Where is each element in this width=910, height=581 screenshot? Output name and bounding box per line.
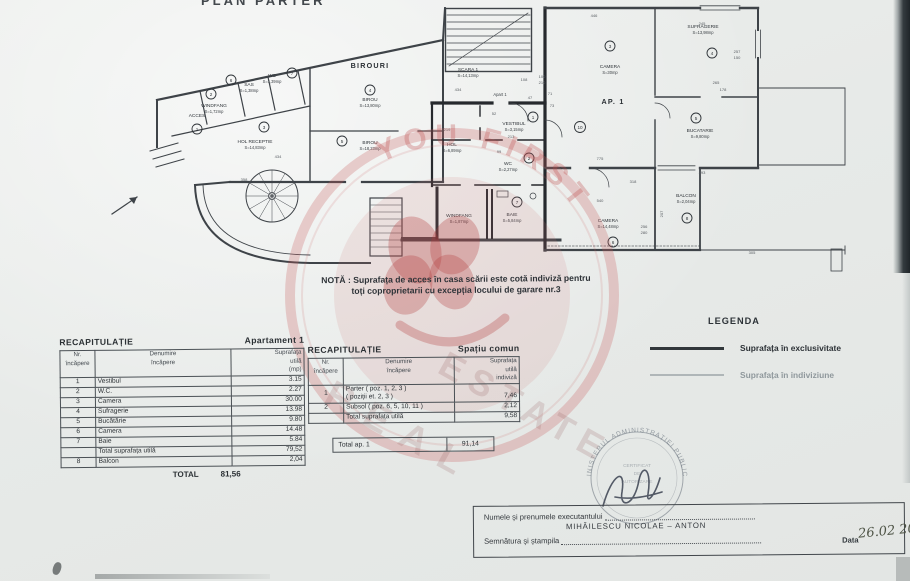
cell-val: 7,46 [454,383,519,402]
total-ap1-box: Total ap. 1 91,14 [332,436,494,452]
room-number: 7 [291,71,294,76]
total-ap1-value: 91,14 [446,437,493,450]
cell-nr: 6 [61,427,96,437]
svg-text:265: 265 [713,80,720,85]
col-denumire: Denumire încăpere [343,357,454,385]
cell-val: 9.80 [232,415,305,426]
svg-text:280: 280 [641,230,648,235]
total-value: 81,56 [221,469,241,478]
room-label-wc1: WC S=1,39mp 7 [263,68,297,84]
cell-nr: 5 [61,417,96,427]
col-suprafata: Suprafața utilă indiviză [454,357,519,384]
svg-text:100: 100 [539,74,546,79]
room-number: 4 [711,51,714,56]
room-number: 6 [230,78,233,83]
table-row: 1Parter ( poz. 1, 2, 3 ) ( poziții et. 2… [308,383,519,403]
scan-smudge [95,574,270,579]
scan-edge-band-lower [902,273,910,483]
recap-spatiu-comun-table: RECAPITULAȚIE Spațiu comun Nr. încăpere … [308,343,521,453]
scan-edge-band [893,0,910,273]
room-number: 5 [341,139,344,144]
col-nr: Nr. încăpere [60,350,95,377]
cell-nr: 8 [61,457,96,467]
solid-line-sample [650,347,724,350]
room-label-bucatarie: BUCATARIE S=9,80mp 5 [687,113,714,139]
legend: LEGENDA Suprafața în exclusivitate Supra… [650,316,906,380]
legend-item-label: Suprafața în indiviziune [740,370,834,380]
cell-nr: 4 [60,407,95,417]
room-number: 6 [612,240,615,245]
cell-nr: 2 [60,387,95,397]
window-lines [700,6,740,10]
svg-text:73: 73 [550,103,555,108]
room-area: S=14,83mp [244,145,266,150]
executant-label: Numele și prenumele executantului [484,512,603,522]
room-label-birou4: BIROU S=13,80mp 4 [359,85,381,108]
room-label-acces: ACCES 1 [189,113,206,134]
stamp-line3: AUTORIZARE [622,479,653,485]
svg-text:318: 318 [630,179,637,184]
cell-val: 30.00 [231,395,304,406]
svg-text:210: 210 [539,80,546,85]
cell-val: 2.27 [231,385,304,396]
svg-text:358: 358 [241,177,248,182]
room-number: 4 [369,88,372,93]
ap1-label: AP. 1 [601,97,624,106]
legend-item-label: Suprafața în exclusivitate [740,343,841,353]
svg-text:434: 434 [275,154,282,159]
svg-text:775: 775 [597,156,604,161]
room-number: 8 [686,216,689,221]
room-area: S=1,38mp [240,88,259,93]
svg-text:293: 293 [699,170,706,175]
cell-val: 14.48 [232,425,305,436]
svg-text:245: 245 [699,21,706,26]
room-label-scara1: SCARA 1 S=14,13mp [457,67,479,78]
room-number: 3 [263,125,266,130]
cell-val: 79,52 [232,445,305,456]
room-area: S=2,04mp [677,199,696,204]
balcony-door [658,166,695,170]
room-area: S=1,72mp [205,109,224,114]
room-number-10: 10 [577,125,583,130]
cell-val: 2,04 [232,455,305,466]
table-header-row: Nr. încăpere Denumire încăpere Suprafața… [308,357,519,386]
room-name: ACCES [189,113,206,119]
room-label-balcon: BALCON S=2,04mp 8 [676,193,696,223]
cell-nr [61,447,96,457]
cell-nr: 2 [309,403,344,413]
page-title: PLAN PARTER [201,0,325,8]
table-row-total: Total suprafața utilă9,58 [309,412,520,424]
dotted-line [605,511,755,520]
room-label-hol-receptie: HOL RECEPTIE S=14,83mp 3 [237,122,272,150]
window-lines [756,30,761,58]
col-suprafata: Suprafața utilă (mp) [231,348,304,376]
room-number: 1 [196,127,199,132]
dotted-line [561,535,761,545]
scan-smudge [896,557,910,581]
room-area: S=30mp [602,70,618,75]
room-area: S=13,98mp [692,30,714,35]
recap1-subtitle: Apartament 1 [245,335,305,346]
cell-val: 3.15 [231,375,304,386]
table-header-row: Nr. încăpere Denumire încăpere Suprafața… [60,348,304,377]
cell-denumire: Balcon [96,456,232,467]
svg-text:52: 52 [492,111,497,116]
handwritten-signature [603,470,662,506]
legend-item-exclusivitate: Suprafața în exclusivitate [650,343,906,353]
recap1-title: RECAPITULAȚIE [59,337,133,348]
room-area: S=13,80mp [359,103,381,108]
recap2-title: RECAPITULAȚIE [308,344,382,355]
total-ap1-label: Total ap. 1 [333,441,446,449]
svg-text:207: 207 [659,210,664,217]
col-nr: Nr. încăpere [308,358,343,385]
recap2-subtitle: Spațiu comun [458,343,520,354]
handwritten-date: 26.02 2006 [857,520,910,542]
executant-name: MIHĂILESCU NICOLAE – ANTON [566,521,706,531]
signature-label: Semnătura și ștampila [484,536,559,546]
door-arc [510,103,528,121]
cell-nr: 7 [61,437,96,447]
room-area: S=2,27mp [499,167,518,172]
svg-text:47: 47 [528,95,533,100]
cell-val: 2,12 [455,402,520,413]
cell-nr: 1 [308,385,343,403]
room-number: 2 [210,92,213,97]
note: NOTĂ : Suprafața de acces în casa scării… [280,272,632,297]
svg-text:257: 257 [734,49,741,54]
room-area: S=14,13mp [457,73,479,78]
legend-title: LEGENDA [708,316,906,326]
sink-fixture [530,193,536,199]
cell-val: 13.98 [231,405,304,416]
svg-text:71: 71 [548,91,553,96]
svg-text:434: 434 [455,87,462,92]
main-staircase [446,9,532,72]
room-area: S=9,80mp [691,134,710,139]
table-row: 8Balcon2,04 [61,455,305,468]
svg-text:256: 256 [641,224,648,229]
svg-text:150: 150 [734,55,741,60]
apart1-label: Apart 1 [493,92,507,97]
cell-denumire: Total suprafața utilă [344,412,455,423]
total-label: TOTAL [173,470,199,479]
room-number: 3 [609,44,612,49]
recap-apartament-table: RECAPITULAȚIE Apartament 1 Nr. încăpere … [59,335,305,480]
legend-item-indiviziune: Suprafața în indiviziune [650,370,906,380]
cell-nr: 3 [60,397,95,407]
faint-line-sample [650,374,724,376]
birouri-label: BIROURI [351,61,390,70]
cell-val: 5.84 [232,435,305,446]
room-number: 1 [532,115,535,120]
spiral-staircase [246,170,298,222]
room-label-windfang1: WINDFANG S=1,72mp 2 [201,89,227,114]
svg-text:446: 446 [591,13,598,18]
date-label: Data [842,536,859,545]
room-number: 5 [695,116,698,121]
svg-text:178: 178 [720,87,727,92]
svg-text:540: 540 [597,198,604,203]
scanned-floor-plan-page: ACCES 1 WINDFANG S=1,72mp 2 SAS S=1,38mp… [0,0,910,581]
svg-text:305: 305 [749,250,756,255]
cell-denumire: Parter ( poz. 1, 2, 3 ) ( poziții et. 2,… [343,384,454,403]
room-area: S=1,39mp [263,79,282,84]
svg-text:108: 108 [521,77,528,82]
col-denumire: Denumire încăpere [95,349,231,377]
cell-nr [309,413,344,423]
executant-box: Numele și prenumele executantului MIHĂIL… [473,502,905,558]
stamp-line1: CERTIFICAT [623,463,651,469]
room-label-camera3: CAMERA S=30mp 3 [600,41,621,75]
room-label-sufragerie: SUFRAGERIE S=13,98mp 4 [687,24,718,58]
cell-nr: 1 [60,377,95,387]
cell-val: 9,58 [455,412,520,423]
